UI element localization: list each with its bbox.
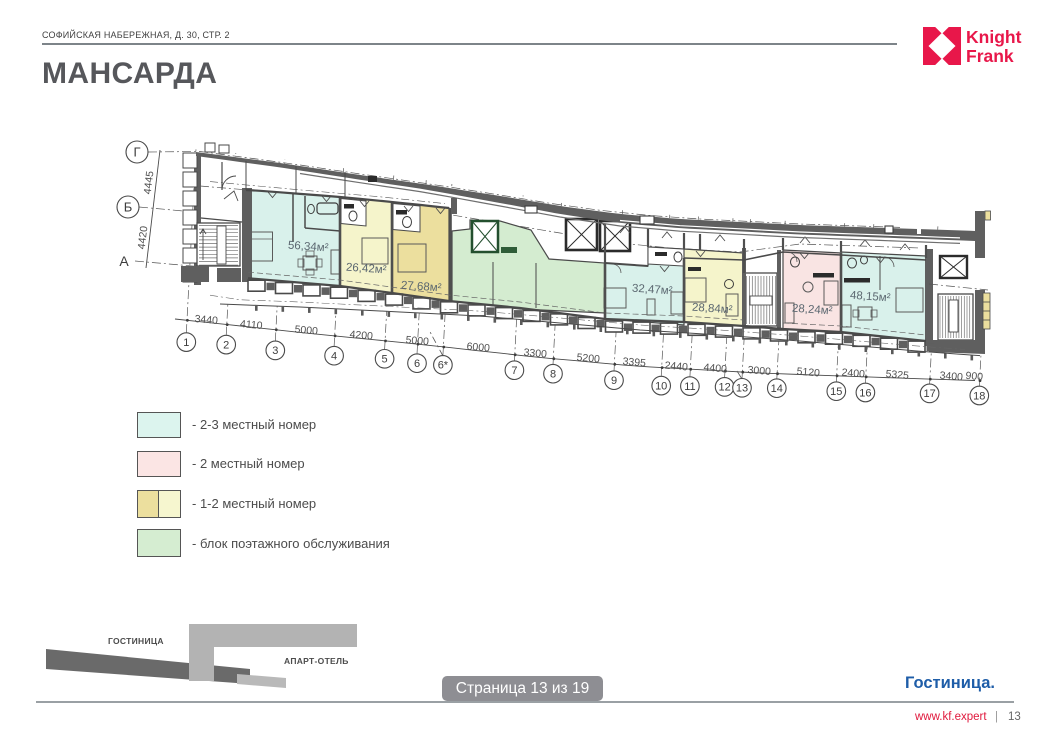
svg-text:13: 13: [736, 383, 748, 395]
svg-text:14: 14: [771, 383, 783, 395]
svg-text:15: 15: [830, 386, 842, 398]
svg-text:4400: 4400: [703, 362, 727, 376]
svg-text:11: 11: [684, 381, 695, 393]
svg-text:2400: 2400: [841, 367, 865, 381]
svg-text:4200: 4200: [349, 329, 373, 343]
svg-text:6*: 6*: [438, 360, 449, 372]
svg-text:2440: 2440: [664, 360, 688, 374]
svg-text:16: 16: [859, 387, 871, 399]
svg-text:17: 17: [923, 388, 935, 400]
svg-text:3440: 3440: [194, 313, 218, 327]
svg-text:5: 5: [382, 354, 388, 366]
svg-text:8: 8: [550, 369, 556, 381]
svg-text:Г: Г: [133, 145, 140, 160]
svg-text:4445: 4445: [142, 170, 157, 195]
svg-text:12: 12: [718, 382, 730, 394]
svg-text:Б: Б: [124, 200, 133, 215]
svg-text:10: 10: [655, 380, 667, 392]
svg-text:1: 1: [183, 337, 189, 349]
svg-text:6000: 6000: [466, 341, 490, 355]
svg-text:5000: 5000: [405, 334, 429, 348]
svg-text:5200: 5200: [576, 352, 600, 366]
svg-text:3: 3: [272, 345, 278, 357]
svg-text:5000: 5000: [294, 324, 318, 338]
svg-text:7: 7: [511, 365, 517, 377]
svg-text:А: А: [119, 253, 129, 269]
svg-text:18: 18: [973, 390, 985, 402]
svg-text:3400: 3400: [939, 370, 963, 384]
svg-text:900: 900: [965, 370, 984, 383]
svg-text:4110: 4110: [239, 318, 263, 332]
svg-text:5120: 5120: [796, 366, 820, 380]
svg-text:2: 2: [223, 339, 229, 351]
svg-text:3000: 3000: [747, 364, 771, 378]
svg-text:4: 4: [331, 351, 337, 363]
svg-text:6: 6: [414, 358, 420, 370]
svg-text:3300: 3300: [523, 347, 547, 361]
svg-text:5325: 5325: [885, 368, 909, 382]
svg-text:9: 9: [611, 375, 617, 387]
svg-text:3395: 3395: [622, 356, 646, 370]
